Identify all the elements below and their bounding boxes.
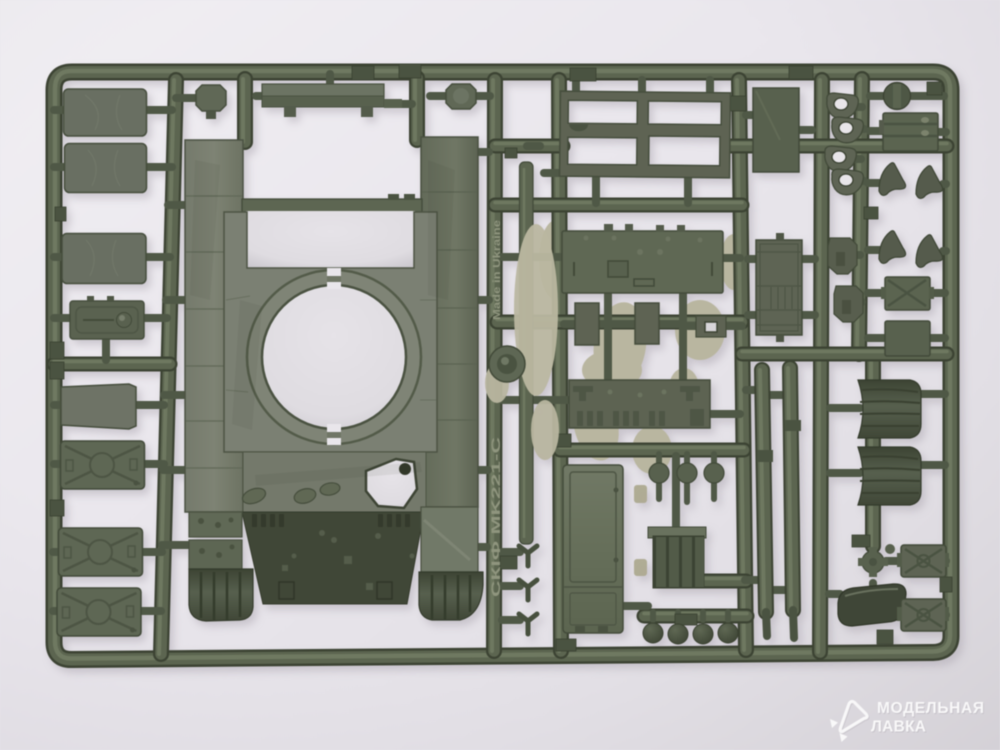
svg-text:СКІФ MK221-C: СКІФ MK221-C [491, 437, 503, 597]
svg-text:МОДЕЛЬНАЯ: МОДЕЛЬНАЯ [877, 700, 984, 717]
svg-text:ЛАВКА: ЛАВКА [871, 719, 926, 736]
svg-text:Made in Ukraine: Made in Ukraine [491, 220, 503, 320]
